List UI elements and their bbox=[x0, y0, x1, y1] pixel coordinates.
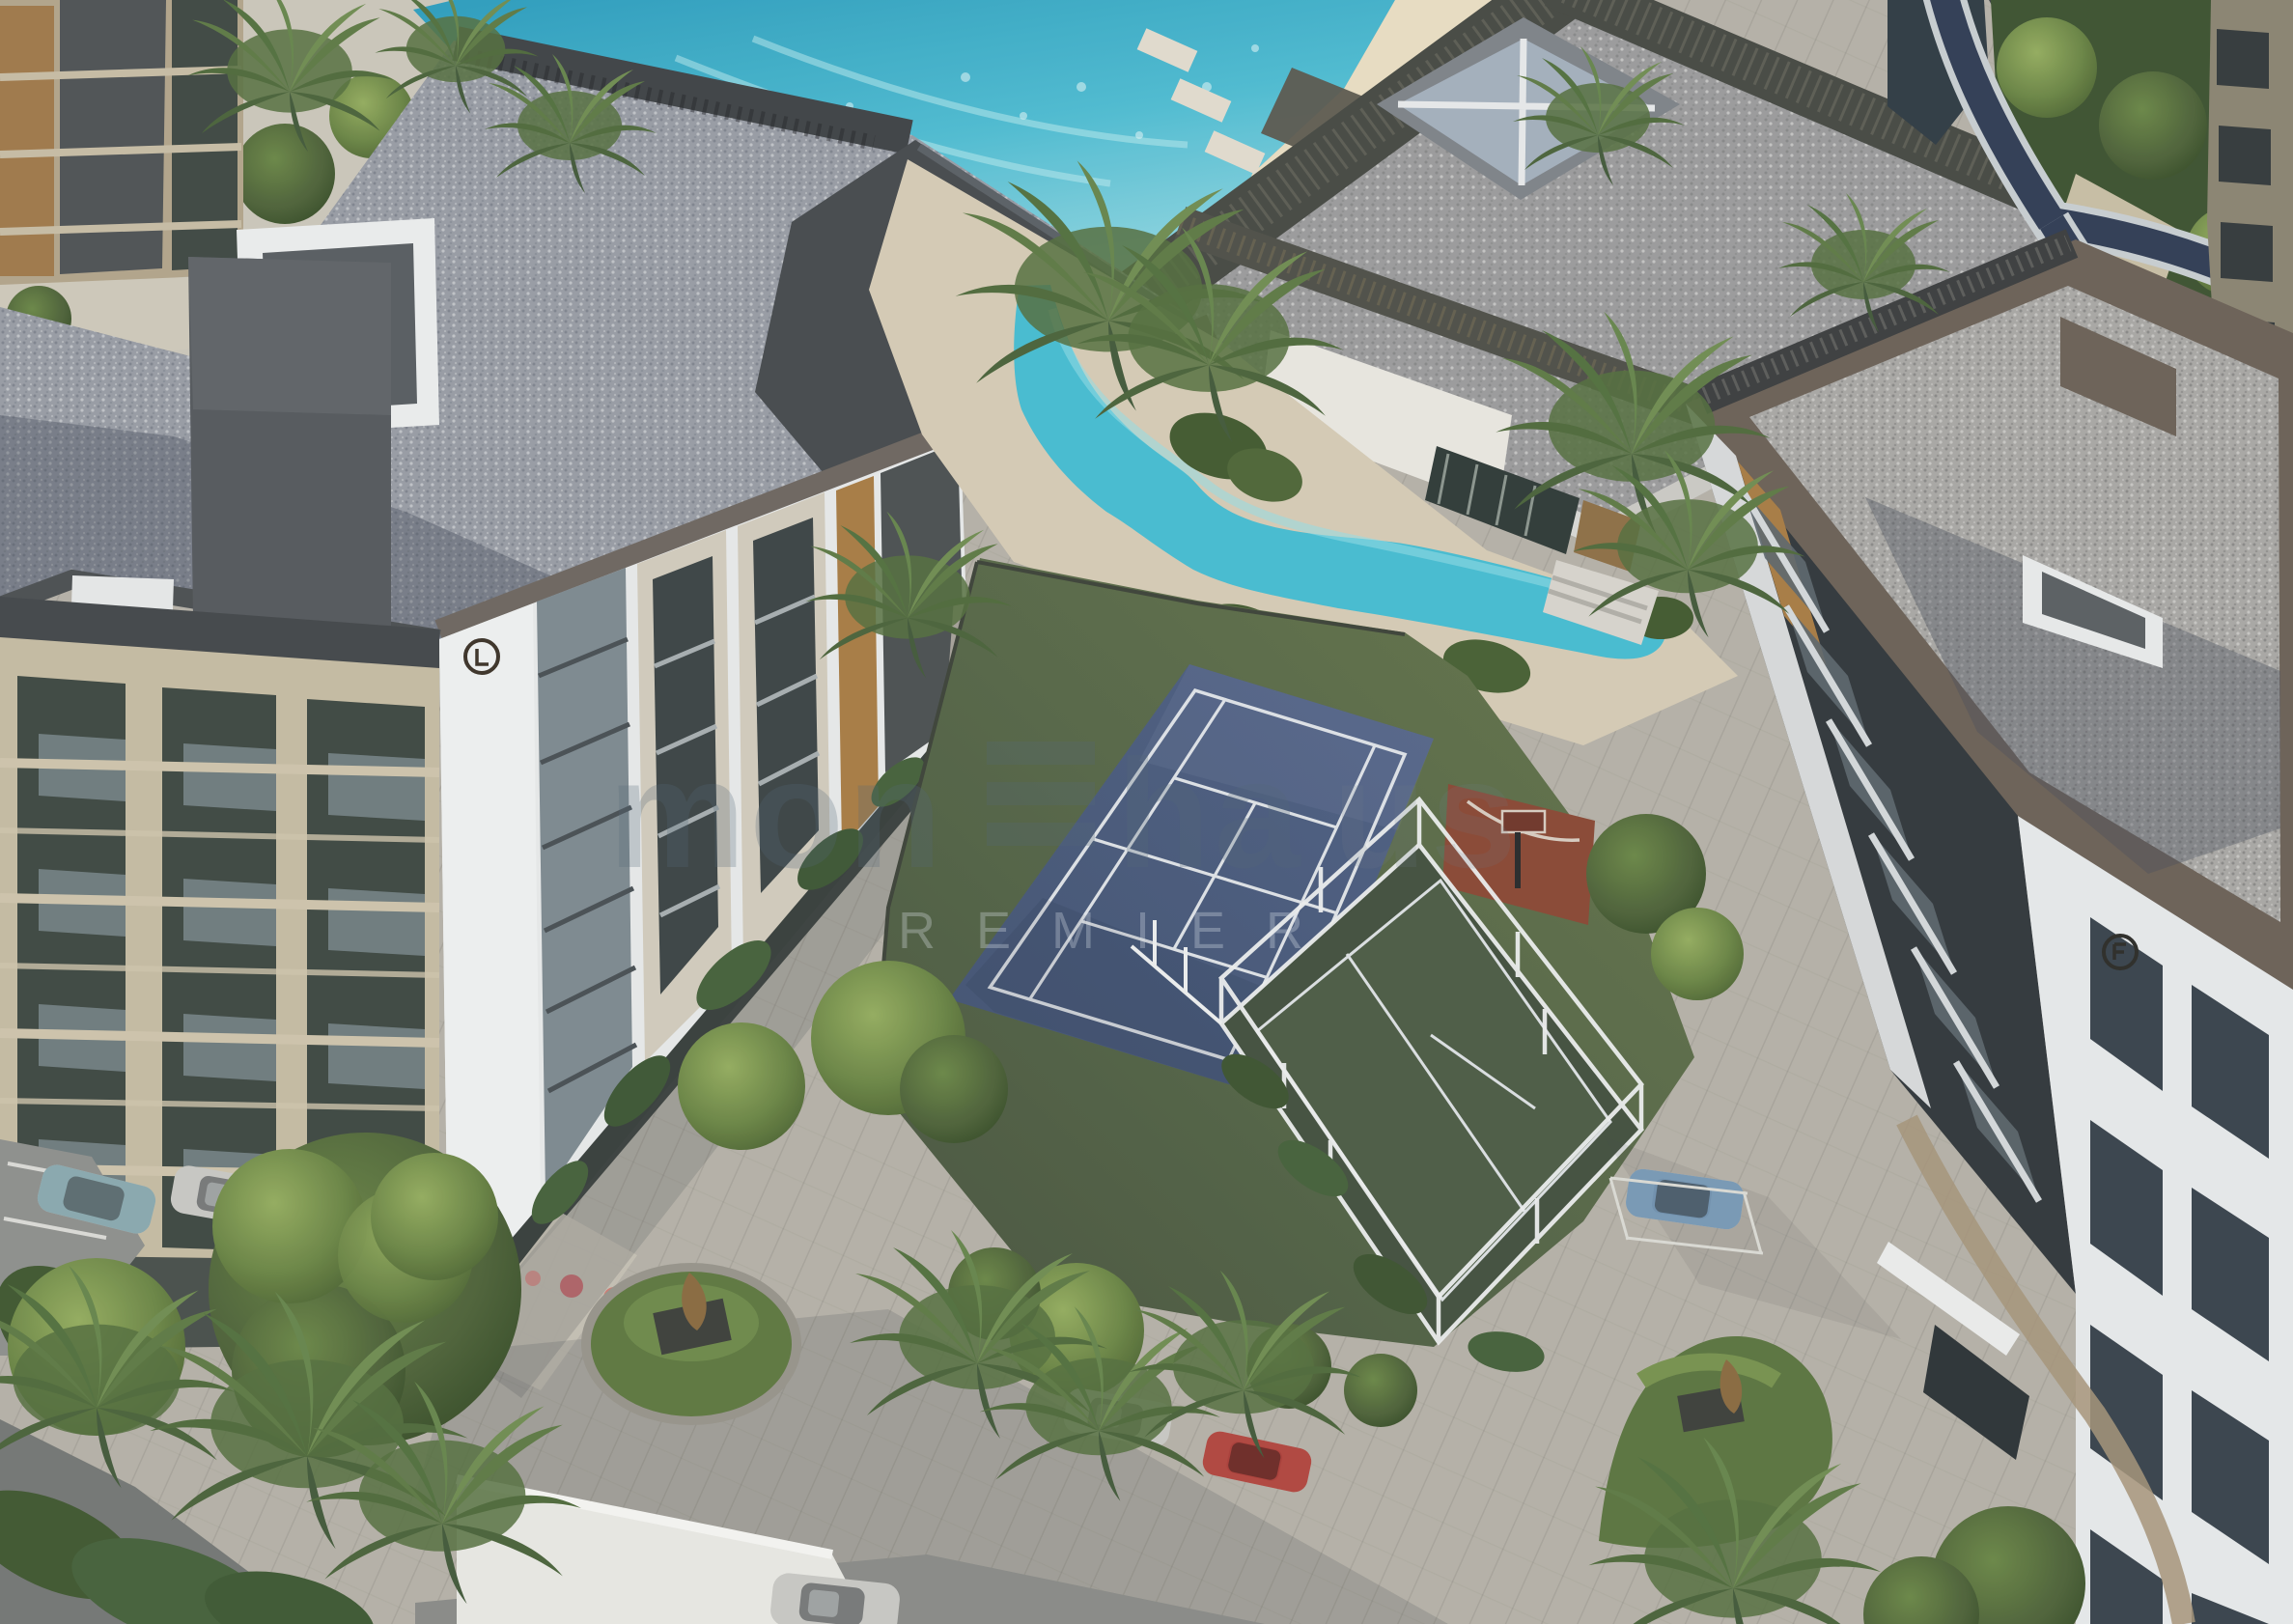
svg-text:ha: ha bbox=[1116, 727, 1304, 900]
svg-text:us: us bbox=[1332, 727, 1521, 900]
svg-text:mon: mon bbox=[608, 727, 946, 900]
svg-text:REMIER: REMIER bbox=[898, 902, 1344, 960]
